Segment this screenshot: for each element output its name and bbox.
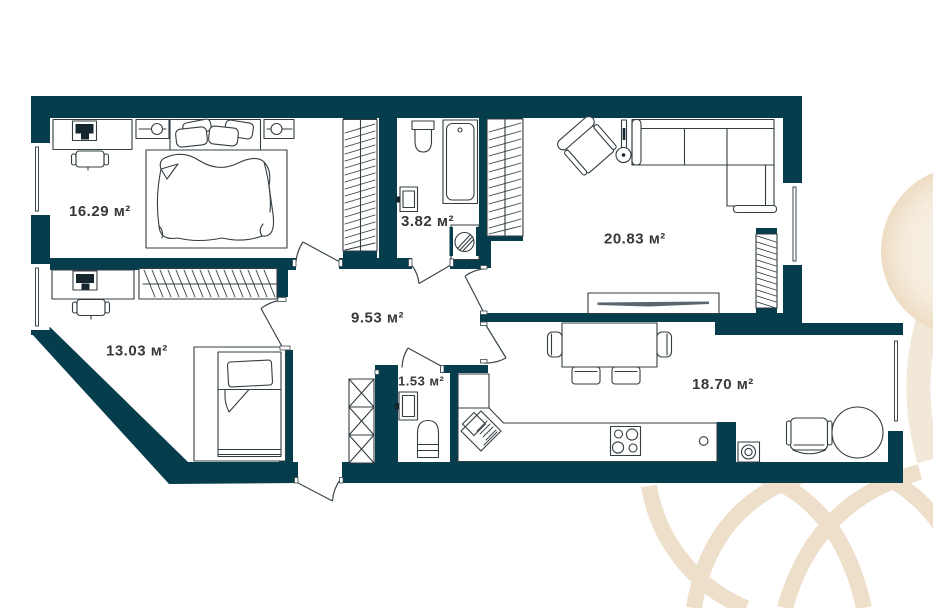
svg-text:20.83 м²: 20.83 м² xyxy=(604,231,666,248)
svg-text:16.29 м²: 16.29 м² xyxy=(69,203,131,220)
svg-text:18.70 м²: 18.70 м² xyxy=(692,376,754,393)
svg-text:9.53 м²: 9.53 м² xyxy=(351,310,404,327)
svg-text:13.03 м²: 13.03 м² xyxy=(106,343,168,360)
svg-text:3.82 м²: 3.82 м² xyxy=(401,213,454,230)
svg-text:1.53 м²: 1.53 м² xyxy=(398,374,445,389)
